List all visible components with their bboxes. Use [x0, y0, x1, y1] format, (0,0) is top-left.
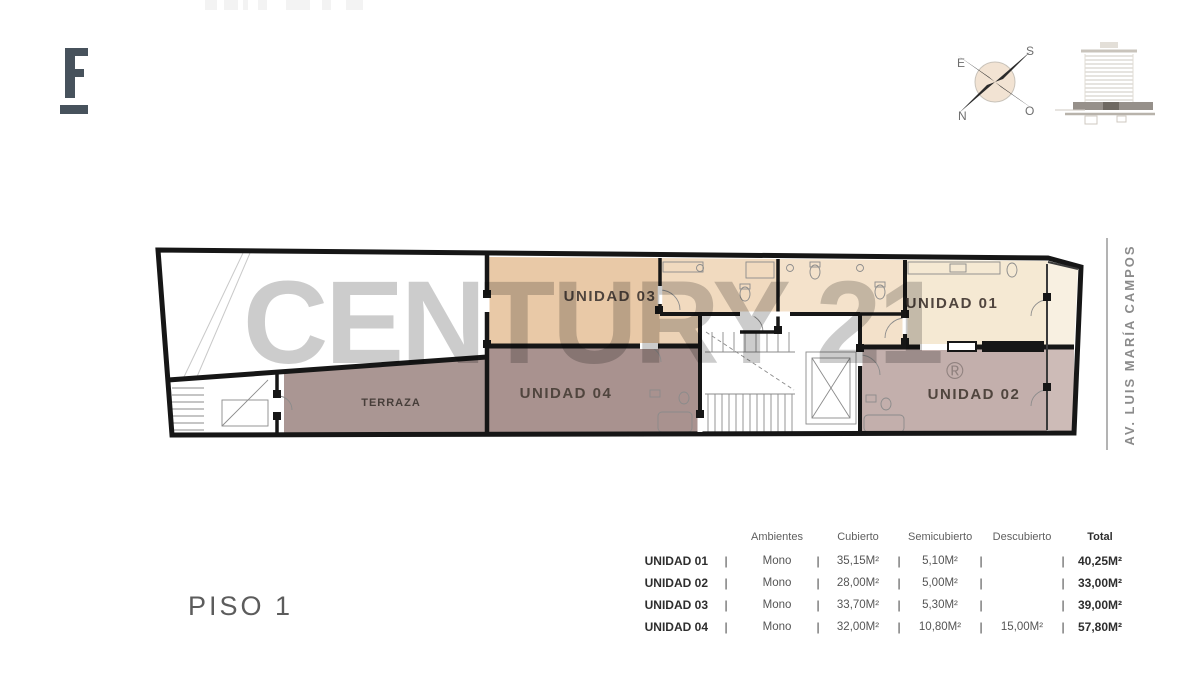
row-total: 33,00M²	[1072, 576, 1128, 590]
separator: |	[1054, 598, 1072, 612]
row-cubierto: 32,00M²	[826, 621, 890, 633]
table-row-unidad-01: UNIDAD 01 | Mono | 35,15M² | 5,10M² | | …	[640, 550, 1140, 572]
row-unit: UNIDAD 02	[640, 576, 708, 590]
terraza-label: TERRAZA	[361, 397, 421, 409]
header-total: Total	[1072, 531, 1128, 543]
wall-block	[982, 341, 1044, 352]
separator: |	[810, 598, 826, 612]
row-unit: UNIDAD 01	[640, 554, 708, 568]
window-inset	[948, 342, 976, 351]
table-row-unidad-02: UNIDAD 02 | Mono | 28,00M² | 5,00M² | | …	[640, 572, 1140, 594]
registered-trademark-icon: ®	[946, 358, 964, 386]
row-total: 57,80M²	[1072, 620, 1128, 634]
separator: |	[890, 554, 908, 568]
header-descubierto: Descubierto	[990, 531, 1054, 543]
row-semicubierto: 5,10M²	[908, 555, 972, 567]
row-semicubierto: 5,30M²	[908, 599, 972, 611]
separator: |	[1054, 620, 1072, 634]
row-total: 40,25M²	[1072, 554, 1128, 568]
row-descubierto: 15,00M²	[990, 621, 1054, 633]
floor-plan-sheet: E S N O	[0, 0, 1200, 675]
unit-01-balcony	[1047, 261, 1078, 346]
separator: |	[810, 620, 826, 634]
areas-table: Ambientes Cubierto Semicubierto Descubie…	[640, 524, 1140, 638]
row-semicubierto: 5,00M²	[908, 577, 972, 589]
floor-label: PISO 1	[188, 591, 293, 622]
separator: |	[708, 598, 744, 612]
row-cubierto: 33,70M²	[826, 599, 890, 611]
header-semicubierto: Semicubierto	[908, 531, 972, 543]
row-unit: UNIDAD 04	[640, 620, 708, 634]
street-name-label: AV. LUIS MARÍA CAMPOS	[1122, 235, 1137, 455]
separator: |	[972, 598, 990, 612]
separator: |	[890, 576, 908, 590]
separator: |	[890, 620, 908, 634]
row-cubierto: 28,00M²	[826, 577, 890, 589]
row-cubierto: 35,15M²	[826, 555, 890, 567]
separator: |	[1054, 554, 1072, 568]
separator: |	[810, 576, 826, 590]
areas-table-header: Ambientes Cubierto Semicubierto Descubie…	[640, 524, 1140, 550]
header-ambientes: Ambientes	[744, 531, 810, 543]
separator: |	[972, 554, 990, 568]
table-row-unidad-04: UNIDAD 04 | Mono | 32,00M² | 10,80M² | 1…	[640, 616, 1140, 638]
row-ambientes: Mono	[744, 577, 810, 589]
separator: |	[972, 620, 990, 634]
separator: |	[810, 554, 826, 568]
row-unit: UNIDAD 03	[640, 598, 708, 612]
unit-02-label: UNIDAD 02	[928, 386, 1021, 403]
row-total: 39,00M²	[1072, 598, 1128, 612]
header-cubierto: Cubierto	[826, 531, 890, 543]
table-row-unidad-03: UNIDAD 03 | Mono | 33,70M² | 5,30M² | | …	[640, 594, 1140, 616]
row-ambientes: Mono	[744, 599, 810, 611]
row-semicubierto: 10,80M²	[908, 621, 972, 633]
separator: |	[708, 554, 744, 568]
unit-02-balcony	[1047, 346, 1074, 433]
separator: |	[708, 576, 744, 590]
row-ambientes: Mono	[744, 555, 810, 567]
row-ambientes: Mono	[744, 621, 810, 633]
separator: |	[708, 620, 744, 634]
century21-watermark: CENTURY 21	[243, 264, 941, 382]
separator: |	[1054, 576, 1072, 590]
separator: |	[972, 576, 990, 590]
separator: |	[890, 598, 908, 612]
